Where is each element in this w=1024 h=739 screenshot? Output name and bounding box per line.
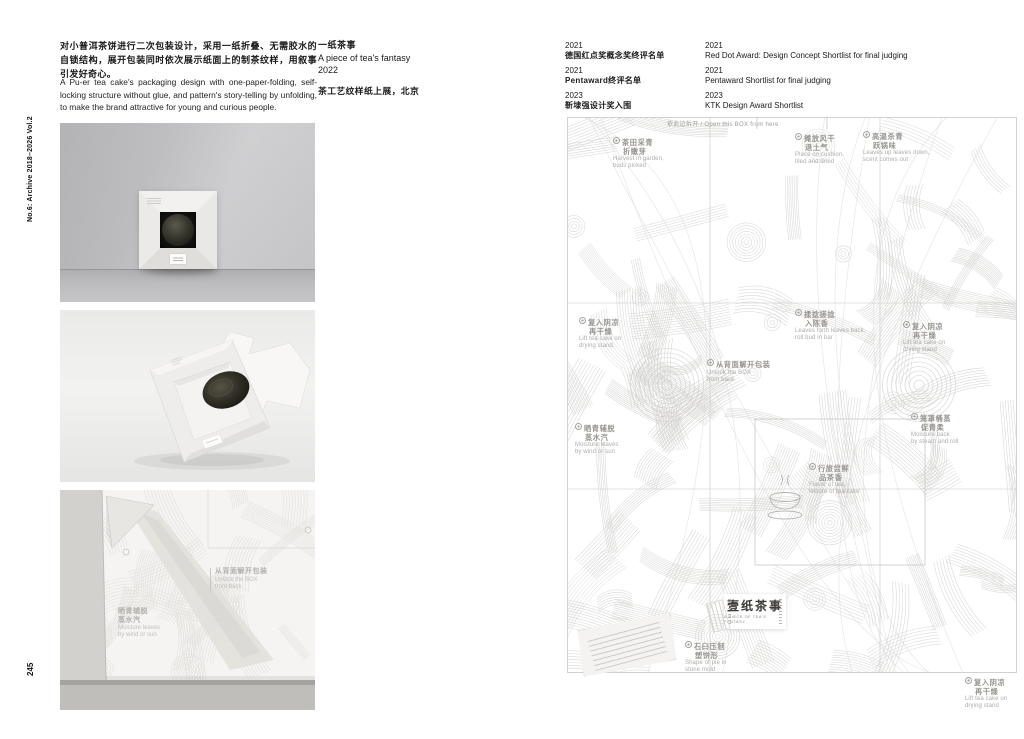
tea-cake: [162, 214, 194, 246]
annotation-zh: 揉捻搓捻: [795, 309, 866, 320]
photo-paper-detail: 从背面解开包装 Unlock the BOX from back 晒青辅脱 蒸水…: [60, 490, 315, 710]
step-circle-icon: [685, 641, 692, 648]
annotation-zh: 笼罩桶蒸: [911, 413, 958, 424]
annotation-en: Shape of pie in: [685, 660, 727, 667]
seal-text-right: [779, 599, 782, 624]
annotation-en2: from back: [215, 584, 268, 591]
paper-annotation: 晒青辅脱 蒸水汽 Moisture leaves by wind or sun: [118, 608, 160, 639]
annotation-en: Moisture leaves: [118, 625, 160, 632]
awards-column-en: 2021 Red Dot Award: Design Concept Short…: [705, 41, 1020, 116]
annotation-zh: 复入阴凉: [965, 677, 1007, 688]
step-circle-icon: [575, 423, 582, 430]
process-annotation: 从背面解开包装 Unlock the BOX from back: [707, 359, 771, 383]
award-year: 2021: [705, 41, 1020, 51]
annotation-zh2: 塑饼形: [685, 652, 727, 661]
annotation-en2: from back: [707, 377, 771, 384]
step-circle-icon: [795, 309, 802, 316]
annotation-zh2: 蒸水汽: [575, 434, 619, 443]
annotation-en2: drying stand: [965, 703, 1007, 710]
process-annotation: 行旅尝鲜 品茶香 Flavor of tea, leisure of tea c…: [809, 463, 860, 496]
annotation-zh: 晒青辅脱: [118, 608, 160, 617]
annotation-zh2: 再干燥: [903, 332, 945, 341]
award-name: 靳埭强设计奖入围: [565, 101, 705, 111]
brand-label-en: A PIECE OF TEA'S FANTASY: [724, 614, 786, 624]
annotation-zh: 晒青辅脱: [575, 423, 619, 434]
project-title-en: A piece of tea's fantasy: [318, 52, 478, 65]
step-circle-icon: [707, 359, 714, 366]
annotation-en2: stone mold: [685, 667, 727, 674]
annotation-zh2: 折嫩芽: [613, 148, 664, 157]
annotation-zh: 从背面解开包装: [707, 359, 771, 370]
award-name: KTK Design Award Shortlist: [705, 101, 1020, 111]
annotation-zh: 从背面解开包装: [215, 568, 268, 577]
page-number: 245: [26, 663, 35, 676]
award-name: 德国红点奖概念奖终评名单: [565, 51, 705, 61]
annotation-zh: 行旅尝鲜: [809, 463, 860, 474]
annotation-en2: buds picked: [613, 163, 664, 170]
annotation-en: Lift tea cake on: [965, 696, 1007, 703]
package-window: [160, 212, 196, 248]
award-entry: 2021 Pentaward Shortlist for final judgi…: [705, 66, 1020, 86]
award-entry: 2021 Red Dot Award: Design Concept Short…: [705, 41, 1020, 61]
package-label: [170, 254, 186, 264]
process-annotation: 高温杀青 跃锅味 Leaves up leaves down, scent co…: [863, 131, 930, 164]
annotation-zh2: 促青柔: [911, 424, 958, 433]
annotation-en: Harvest in garden,: [613, 156, 664, 163]
awards-column-zh: 2021 德国红点奖概念奖终评名单 2021 Pentaward终评名单 202…: [565, 41, 705, 116]
annotation-en: Place on cushion,: [795, 152, 844, 159]
book-spread-page: { "page": { "spine_label": "No.6: Archiv…: [0, 0, 1024, 739]
annotation-en: Lift tea cake on: [579, 336, 621, 343]
annotation-en2: scent comes out: [863, 157, 930, 164]
annotation-zh: 复入阴凉: [903, 321, 945, 332]
award-entry: 2021 德国红点奖概念奖终评名单: [565, 41, 705, 61]
project-title-block: 一纸茶事 A piece of tea's fantasy 2022 茶工艺纹样…: [318, 39, 478, 97]
spine-label: No.6: Archive 2018–2026 Vol.2: [27, 116, 34, 222]
step-circle-icon: [613, 137, 620, 144]
annotation-en: Leaves up leaves down,: [863, 150, 930, 157]
process-annotation: 摊放风干 退土气 Place on cushion, tiled and dri…: [795, 133, 844, 166]
annotation-zh2: 退土气: [795, 144, 844, 153]
package-print: [147, 198, 161, 204]
dieline-illustration: 依此边拆开 / Open this BOX from here 茶田采青 折嫩芽…: [567, 117, 1017, 707]
step-circle-icon: [579, 317, 586, 324]
process-annotation: 晒青辅脱 蒸水汽 Moisture leaves by wind or sun: [575, 423, 619, 456]
award-entry: 2023 靳埭强设计奖入围: [565, 91, 705, 111]
award-entry: 2021 Pentaward终评名单: [565, 66, 705, 86]
dieline-pattern-svg: [567, 117, 1017, 707]
photo-package-open: [60, 310, 315, 482]
project-title-zh: 一纸茶事: [318, 39, 478, 52]
process-annotation: 揉捻搓捻 入陈香 Leaves forth leaves back, roll …: [795, 309, 866, 342]
process-annotation: 复入阴凉 再干燥 Lift tea cake on drying stand: [903, 321, 945, 354]
award-year: 2021: [705, 66, 1020, 76]
step-circle-icon: [809, 463, 816, 470]
paper-annotation: 从背面解开包装 Unlock the BOX from back: [210, 568, 268, 591]
process-annotation: 复入阴凉 再干燥 Lift tea cake on drying stand: [965, 677, 1007, 710]
open-hint: 依此边拆开 / Open this BOX from here: [667, 119, 779, 128]
annotation-zh: 茶田采青: [613, 137, 664, 148]
award-name: Red Dot Award: Design Concept Shortlist …: [705, 51, 1020, 61]
step-circle-icon: [965, 677, 972, 684]
step-circle-icon: [911, 413, 918, 420]
intro-paragraph-en: A Pu-er tea cake's packaging design with…: [60, 76, 317, 114]
project-exhibition: 茶工艺纹样纸上展，北京: [318, 85, 478, 98]
annotation-en2: roll bud in bar: [795, 335, 866, 342]
process-annotation: 复入阴凉 再干燥 Lift tea cake on drying stand.: [579, 317, 621, 350]
annotation-en: Lift tea cake on: [903, 340, 945, 347]
photo-paper-detail-art: [60, 490, 315, 710]
award-name: Pentaward Shortlist for final judging: [705, 76, 1020, 86]
annotation-en2: tiled and dried: [795, 159, 844, 166]
annotation-en: Unlock the BOX: [215, 577, 268, 584]
project-year: 2022: [318, 64, 478, 77]
award-year: 2021: [565, 41, 705, 51]
annotation-zh2: 蒸水汽: [118, 617, 160, 626]
brand-label-zh: 壹纸茶事: [727, 600, 783, 613]
annotation-zh: 石臼压制: [685, 641, 727, 652]
award-year: 2023: [705, 91, 1020, 101]
annotation-zh2: 再干燥: [965, 688, 1007, 697]
photo-package-open-art: [60, 310, 315, 482]
brand-label: 壹纸茶事 A PIECE OF TEA'S FANTASY: [724, 594, 786, 629]
step-circle-icon: [795, 133, 802, 140]
intro-paragraph-zh: 对小普洱茶饼进行二次包装设计，采用一纸折叠、无需胶水的自锁结构，展开包装同时依次…: [60, 39, 317, 81]
annotation-en2: by wind or sun: [575, 449, 619, 456]
annotation-zh: 摊放风干: [795, 133, 844, 144]
annotation-zh2: 再干燥: [579, 328, 621, 337]
annotation-en2: leisure of tea cake: [809, 489, 860, 496]
process-annotation: 笼罩桶蒸 促青柔 Moisture back by steam and roll: [911, 413, 958, 446]
annotation-zh: 高温杀青: [863, 131, 930, 142]
annotation-en: Moisture back: [911, 432, 958, 439]
annotation-en: Leaves forth leaves back,: [795, 328, 866, 335]
annotation-en2: by wind or sun: [118, 632, 160, 639]
process-annotation: 茶田采青 折嫩芽 Harvest in garden, buds picked: [613, 137, 664, 170]
annotation-en2: drying stand.: [579, 343, 621, 350]
photo-package-front: [60, 123, 315, 302]
annotation-en: Flavor of tea,: [809, 482, 860, 489]
annotation-zh2: 跃锅味: [863, 142, 930, 151]
annotation-en2: drying stand: [903, 347, 945, 354]
annotation-en2: by steam and roll: [911, 439, 958, 446]
annotation-zh: 复入阴凉: [579, 317, 621, 328]
annotation-en: Moisture leaves: [575, 442, 619, 449]
annotation-en: Unlock the BOX: [707, 370, 771, 377]
award-year: 2021: [565, 66, 705, 76]
step-circle-icon: [863, 131, 870, 138]
annotation-zh2: 入陈香: [795, 320, 866, 329]
tea-package: [139, 191, 217, 269]
award-name: Pentaward终评名单: [565, 76, 705, 86]
process-annotation: 石臼压制 塑饼形 Shape of pie in stone mold: [685, 641, 727, 674]
step-circle-icon: [903, 321, 910, 328]
studio-floor: [60, 269, 315, 302]
award-year: 2023: [565, 91, 705, 101]
award-entry: 2023 KTK Design Award Shortlist: [705, 91, 1020, 111]
annotation-zh2: 品茶香: [809, 474, 860, 483]
